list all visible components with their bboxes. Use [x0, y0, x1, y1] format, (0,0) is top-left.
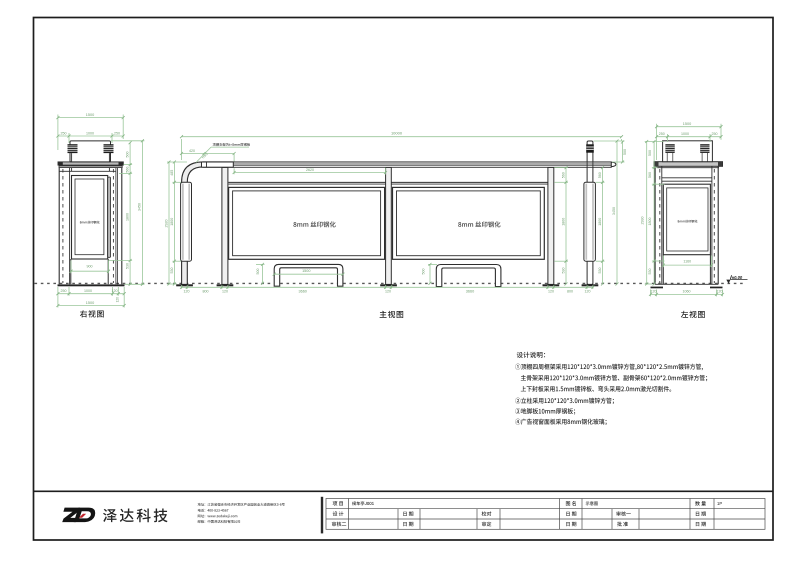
svg-text:2920: 2920 [164, 220, 168, 228]
svg-text:120: 120 [184, 289, 190, 293]
svg-text:120: 120 [112, 289, 118, 293]
svg-text:250: 250 [61, 289, 67, 293]
svg-text:1500: 1500 [86, 301, 94, 305]
svg-text:1000: 1000 [84, 289, 92, 293]
svg-text:120: 120 [222, 289, 228, 293]
svg-text:800: 800 [203, 289, 209, 293]
svg-text:1160: 1160 [683, 259, 691, 263]
svg-text:250: 250 [712, 132, 718, 136]
svg-text:3660: 3660 [466, 289, 474, 293]
svg-text:500: 500 [648, 150, 652, 156]
svg-text:530: 530 [126, 263, 130, 269]
svg-text:120: 120 [651, 290, 657, 294]
svg-text:1500: 1500 [86, 113, 94, 117]
svg-text:530: 530 [170, 268, 174, 274]
svg-text:3450: 3450 [138, 203, 142, 211]
svg-text:2620: 2620 [306, 168, 314, 172]
svg-text:120: 120 [116, 297, 120, 303]
svg-text:120: 120 [717, 290, 723, 294]
svg-text:500: 500 [623, 149, 627, 155]
svg-text:530: 530 [598, 268, 602, 274]
svg-text:1800: 1800 [126, 213, 130, 221]
svg-text:485: 485 [170, 170, 174, 176]
svg-text:1P: 1P [717, 501, 722, 506]
svg-text:120: 120 [385, 289, 391, 293]
svg-text:3660: 3660 [298, 289, 306, 293]
svg-text:500: 500 [126, 152, 130, 158]
svg-text:1000: 1000 [86, 131, 94, 135]
svg-text:1800: 1800 [648, 218, 652, 226]
svg-text:560: 560 [561, 172, 565, 178]
svg-text:500: 500 [256, 269, 260, 275]
svg-text:250: 250 [114, 131, 120, 135]
svg-text:560: 560 [598, 172, 602, 178]
svg-text:900: 900 [87, 265, 93, 269]
svg-text:420: 420 [189, 149, 195, 153]
svg-text:3450: 3450 [612, 207, 616, 215]
svg-text:530: 530 [561, 268, 565, 274]
svg-text:530: 530 [648, 269, 652, 275]
svg-text:1500: 1500 [683, 122, 691, 126]
svg-text:10000: 10000 [391, 131, 403, 136]
svg-text:560: 560 [126, 167, 130, 173]
svg-text:1800: 1800 [598, 218, 602, 226]
svg-text:250: 250 [659, 132, 665, 136]
svg-text:2930: 2930 [641, 217, 645, 225]
svg-text:120: 120 [548, 289, 554, 293]
svg-text:250: 250 [61, 131, 67, 135]
svg-text:500: 500 [422, 269, 426, 275]
svg-text:1500: 1500 [302, 269, 310, 273]
svg-text:1000: 1000 [681, 132, 689, 136]
svg-text:560: 560 [648, 172, 652, 178]
svg-text:1800: 1800 [561, 218, 565, 226]
svg-text:120: 120 [585, 289, 591, 293]
svg-text:1060: 1060 [683, 290, 691, 294]
svg-text:800: 800 [567, 289, 573, 293]
svg-text:1800: 1800 [170, 218, 174, 226]
